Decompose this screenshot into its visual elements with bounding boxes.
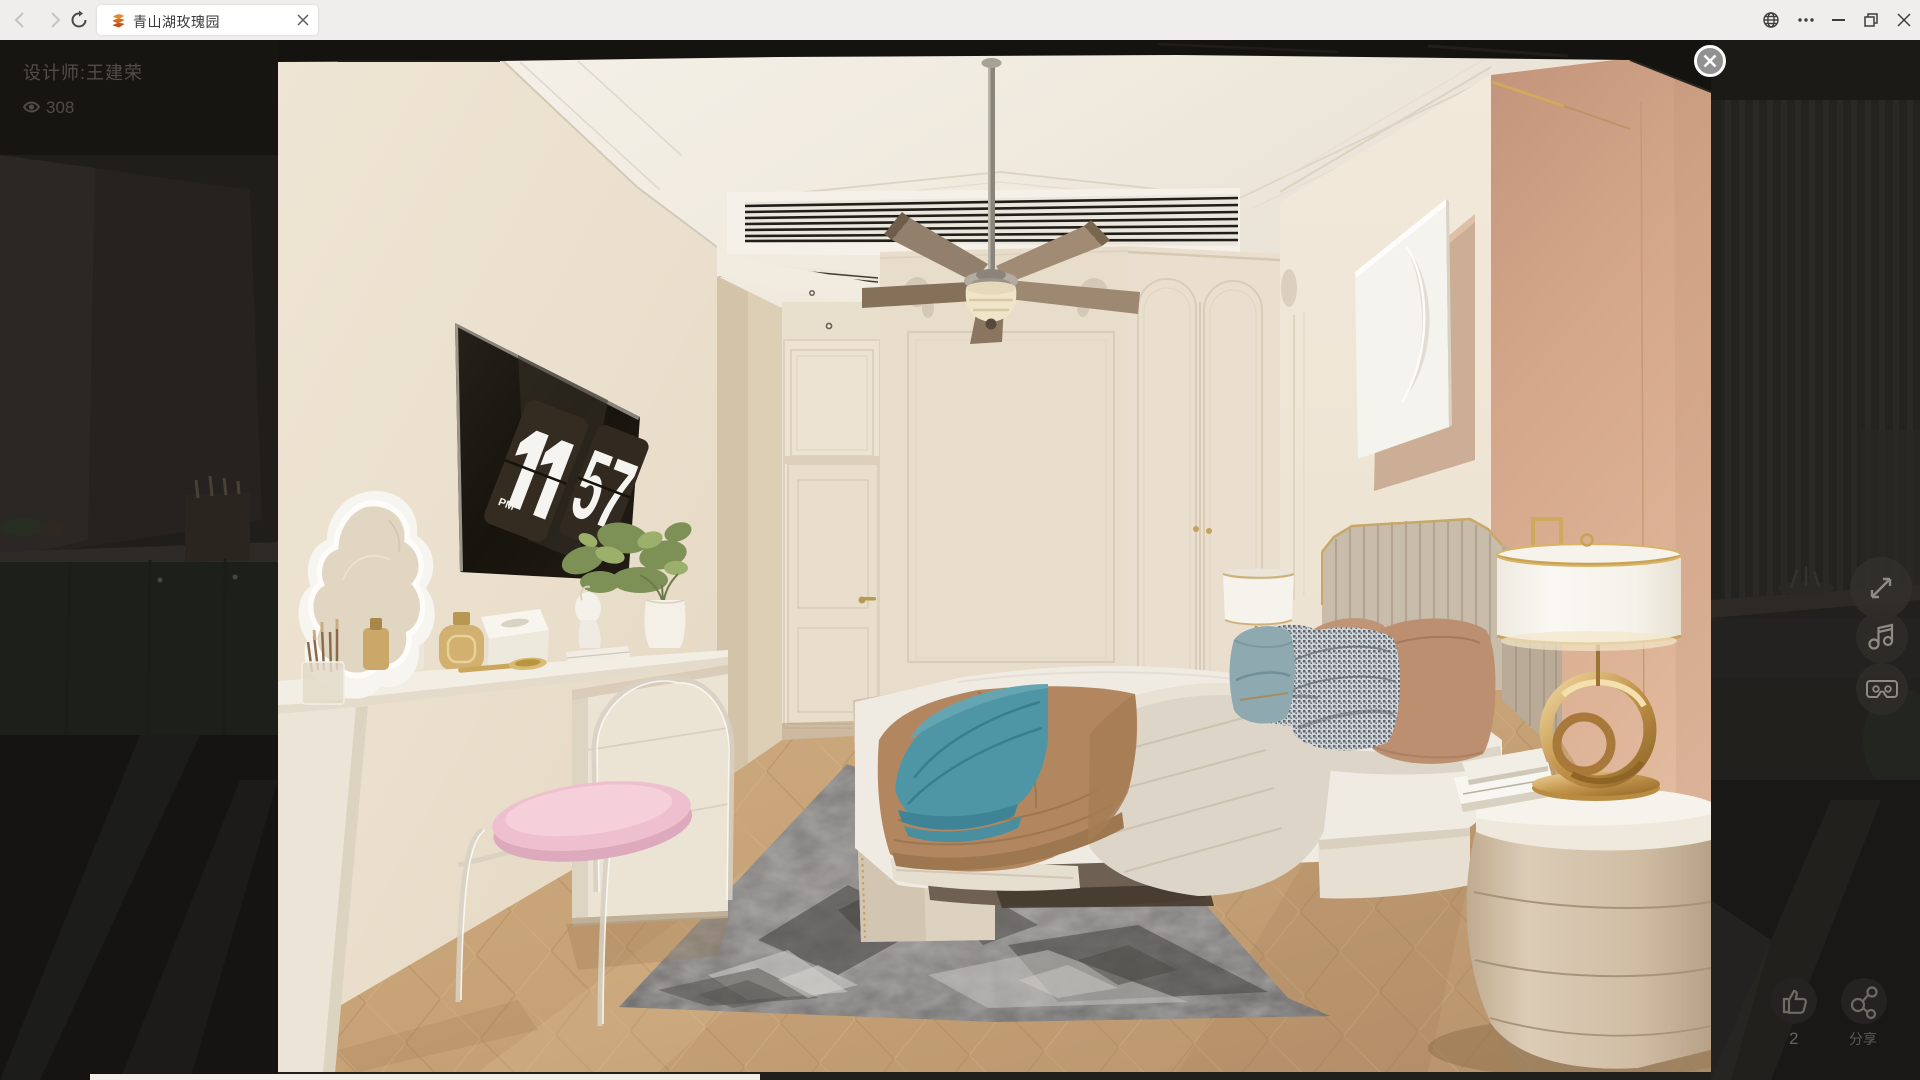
svg-text:2: 2	[1789, 1029, 1798, 1048]
svg-text:308: 308	[46, 98, 74, 117]
svg-text:分享: 分享	[1849, 1031, 1877, 1047]
